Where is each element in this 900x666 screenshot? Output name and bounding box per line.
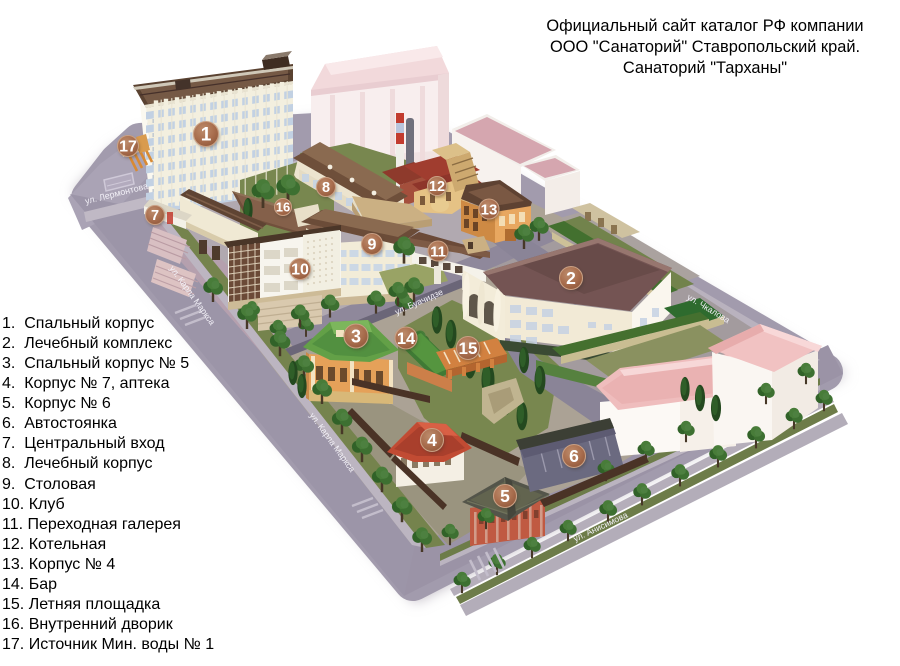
svg-text:13: 13 <box>481 201 498 218</box>
svg-text:3: 3 <box>351 326 361 346</box>
svg-text:4: 4 <box>427 430 437 450</box>
svg-text:9: 9 <box>368 237 377 254</box>
svg-text:2: 2 <box>566 268 576 288</box>
svg-text:10: 10 <box>291 262 309 279</box>
svg-text:16: 16 <box>276 200 290 215</box>
svg-text:14: 14 <box>397 330 416 348</box>
svg-text:1: 1 <box>201 125 212 146</box>
svg-text:17: 17 <box>119 139 137 156</box>
svg-text:11: 11 <box>430 243 446 260</box>
svg-text:6: 6 <box>569 446 579 466</box>
svg-text:8: 8 <box>322 180 330 196</box>
svg-text:15: 15 <box>459 339 478 358</box>
svg-text:7: 7 <box>151 208 159 224</box>
svg-text:5: 5 <box>500 486 510 506</box>
svg-text:12: 12 <box>429 179 445 195</box>
